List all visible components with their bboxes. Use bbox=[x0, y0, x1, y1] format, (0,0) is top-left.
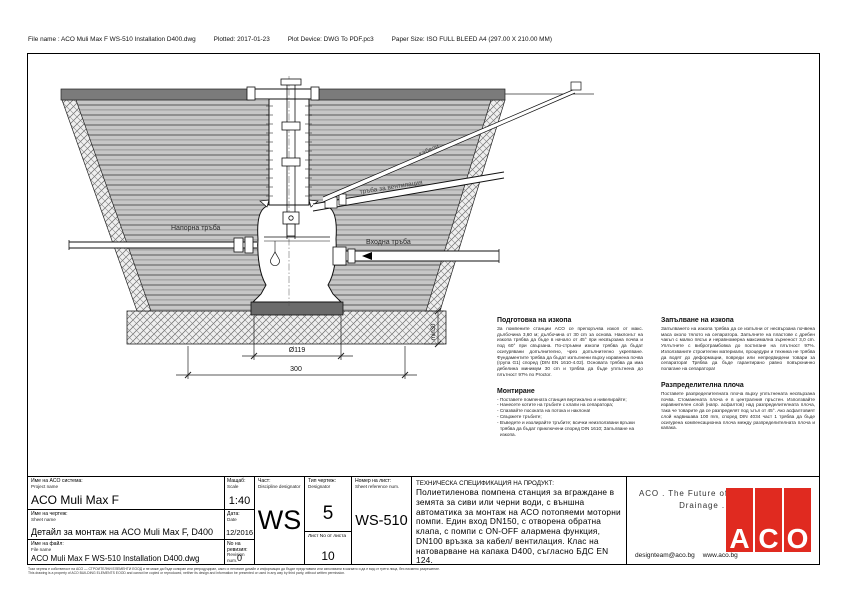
section-body: За помпените станции ACO се препоръчва и… bbox=[497, 326, 643, 378]
discipline-value: WS bbox=[255, 505, 304, 536]
plot-paper-size: Paper Size: ISO FULL BLEED A4 (297.00 X … bbox=[392, 36, 552, 43]
plot-date: Plotted: 2017-01-23 bbox=[214, 36, 270, 43]
date-value: 12/2016 bbox=[225, 528, 254, 537]
sheet-frame: Ø119 300 min30 bbox=[27, 53, 820, 565]
title-block-left: Име на ACO система: Project name ACO Mul… bbox=[28, 477, 254, 565]
sheets-count-value: 10 bbox=[305, 549, 351, 563]
check-valve bbox=[283, 212, 299, 224]
inlet-pipe-label: Входна тръба bbox=[366, 238, 411, 246]
tech-spec-cell: ТЕХНИЧЕСКА СПЕЦИФИКАЦИЯ НА ПРОДУКТ: Поли… bbox=[411, 477, 626, 565]
file-name-row: Име на файл: File name ACO Muli Max F WS… bbox=[28, 540, 254, 565]
title-block: Име на ACO система: Project name ACO Mul… bbox=[28, 476, 819, 565]
aco-logo-letter: O bbox=[787, 527, 809, 552]
aco-logo-letter: C bbox=[758, 527, 778, 552]
mounting-step: - Въведете и изолирайте тръбите; всички … bbox=[497, 420, 643, 438]
gravel-bed bbox=[127, 311, 446, 344]
section-heading: Монтиране bbox=[497, 388, 643, 395]
instructions-column-right: Запълване на изкопа Запълването на изкоп… bbox=[661, 317, 815, 431]
project-row: Име на ACO система: Project name ACO Mul… bbox=[28, 477, 254, 510]
sheet-label-en: Sheet name bbox=[31, 517, 56, 522]
sheet-ref-label-en: Sheet reference num. bbox=[355, 484, 399, 489]
copyright-notice: Този чертеж е собственост на АСО — СТРОИ… bbox=[28, 567, 448, 576]
brand-email: designteam@aco.bg bbox=[635, 552, 695, 559]
project-label-en: Project name bbox=[31, 484, 58, 489]
aco-logo-block: C bbox=[755, 488, 782, 552]
aco-logo-block: O bbox=[784, 488, 811, 552]
section-backfilling: Запълване на изкопа Запълването на изкоп… bbox=[661, 317, 815, 372]
designator-cell: Тип чертеж: Designator 5 Лист No от лист… bbox=[304, 477, 351, 565]
drawing-sheet: File name : ACO Muli Max F WS-510 Instal… bbox=[0, 0, 842, 595]
brand-cell: ACO . The Future of Drainage . designtea… bbox=[626, 477, 819, 565]
revision-label-bg: No на ревизия: bbox=[227, 541, 248, 553]
sheet-ref-value: WS-510 bbox=[352, 513, 411, 529]
revision-value: 0 bbox=[225, 553, 254, 563]
aco-logo-letter: A bbox=[729, 527, 749, 552]
designator-value: 5 bbox=[305, 503, 351, 525]
tagline-line1: ACO . The Future of bbox=[639, 489, 739, 498]
pressure-pipe-label: Напорна тръба bbox=[171, 224, 221, 232]
aco-logo-block: A bbox=[726, 488, 753, 552]
section-heading: Разпределителна плоча bbox=[661, 382, 815, 389]
plot-device: Plot Device: DWG To PDF.pc3 bbox=[288, 36, 374, 43]
sheet-ref-cell: Номер на лист: Sheet reference num. WS-5… bbox=[351, 477, 411, 565]
project-name-value: ACO Muli Max F bbox=[31, 493, 119, 507]
file-name-value: ACO Muli Max F WS-510 Installation D400.… bbox=[31, 554, 200, 563]
section-heading: Запълване на изкопа bbox=[661, 317, 815, 324]
sheets-count-label: Лист No от листа bbox=[305, 532, 351, 539]
dim-diameter-label: Ø119 bbox=[289, 347, 306, 354]
file-label-en: File name bbox=[31, 547, 51, 552]
plot-info-bar: File name : ACO Muli Max F WS-510 Instal… bbox=[28, 36, 570, 43]
section-preparation: Подготовка на изкопа За помпените станци… bbox=[497, 317, 643, 378]
copyright-en: This drawing is a property of ACO BUILDI… bbox=[28, 571, 448, 575]
discipline-cell: Част: Discipline designator WS bbox=[254, 477, 304, 565]
sheet-name-row: Име на чертеж: Sheet name Детайл за монт… bbox=[28, 510, 254, 540]
ground-surface-right bbox=[317, 89, 505, 100]
dim-width-label: 300 bbox=[290, 366, 302, 373]
designator-label-en: Designator bbox=[308, 484, 330, 489]
section-distribution-plate: Разпределителна плоча Поставете разпреде… bbox=[661, 382, 815, 431]
section-mounting: Монтиране - Поставете помпената станция … bbox=[497, 388, 643, 438]
section-body: Запълването на изкопа трябва да се изпъл… bbox=[661, 326, 815, 372]
instructions-column-left: Подготовка на изкопа За помпените станци… bbox=[497, 317, 643, 438]
sheet-name-value: Детайл за монтаж на ACO Muli Max F, D400 bbox=[31, 527, 213, 537]
tech-spec-body: Полиетиленова помпена станция за вгражда… bbox=[416, 488, 622, 566]
base-slab bbox=[251, 302, 343, 315]
plot-file-name: File name : ACO Muli Max F WS-510 Instal… bbox=[28, 36, 196, 43]
scale-value: 1:40 bbox=[225, 495, 254, 507]
aco-logo: A C O bbox=[726, 488, 811, 552]
scale-label-en: Scale bbox=[227, 484, 239, 489]
date-label-en: Date bbox=[227, 517, 237, 522]
brand-tagline: ACO . The Future of Drainage . bbox=[639, 489, 739, 510]
manhole-cover bbox=[249, 89, 317, 99]
discipline-label-en: Discipline designator bbox=[258, 484, 300, 489]
section-body: Поставете разпределителната плоча върху … bbox=[661, 391, 815, 431]
tagline-line2: Drainage . bbox=[639, 501, 739, 510]
tech-spec-heading: ТЕХНИЧЕСКА СПЕЦИФИКАЦИЯ НА ПРОДУКТ: bbox=[416, 480, 622, 487]
ground-surface-left bbox=[61, 89, 249, 100]
section-heading: Подготовка на изкопа bbox=[497, 317, 643, 324]
dim-min-depth-label: min30 bbox=[431, 323, 437, 340]
